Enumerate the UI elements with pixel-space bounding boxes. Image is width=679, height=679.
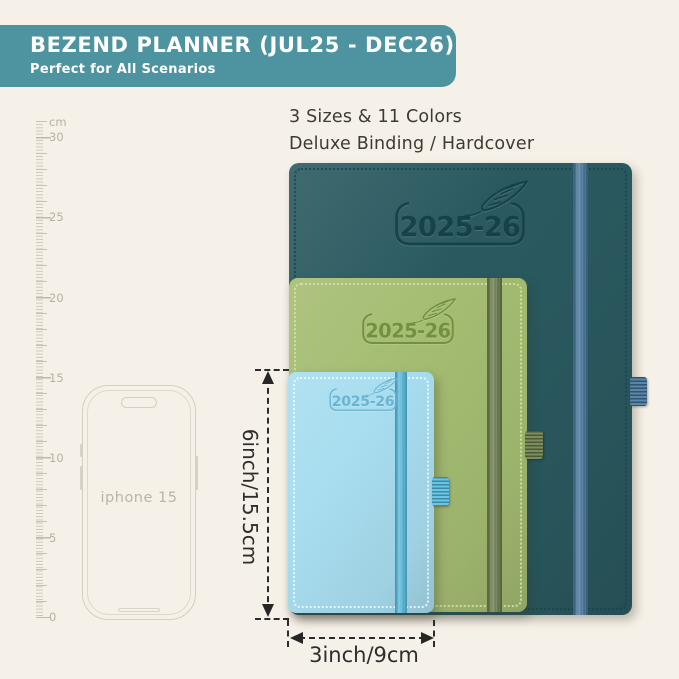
volume-button (80, 466, 83, 490)
dimension-cap (255, 618, 289, 620)
planner-small: 2025-26 (288, 372, 434, 613)
feather-barbs (465, 184, 519, 216)
pen-loop (525, 431, 543, 459)
dimension-cap (287, 620, 289, 647)
ruler-label: 10 (49, 451, 64, 465)
pen-loop (432, 477, 449, 506)
width-label: 3inch/9cm (309, 643, 419, 667)
iphone-outline: iphone 15 (82, 385, 196, 620)
dimension-line (267, 378, 269, 612)
arrow-up-icon (262, 371, 274, 384)
iphone-label: iphone 15 (83, 490, 195, 506)
ruler-label: 0 (49, 610, 56, 624)
volume-button (80, 444, 83, 457)
ruler-label: 20 (49, 291, 64, 305)
year-text: 2025-26 (400, 212, 521, 243)
dimension-line (299, 637, 425, 639)
year-text: 2025-26 (365, 319, 450, 342)
intro-text: 3 Sizes & 11 Colors Deluxe Binding / Har… (289, 104, 534, 158)
header-banner: BEZEND PLANNER (JUL25 - DEC26) Perfect f… (0, 25, 456, 87)
dynamic-island (121, 397, 157, 408)
arrow-down-icon (262, 604, 274, 617)
year-text: 2025-26 (332, 394, 395, 410)
home-indicator (118, 608, 160, 612)
pen-loop (630, 377, 647, 406)
ruler-label: 15 (49, 371, 64, 385)
product-infographic: BEZEND PLANNER (JUL25 - DEC26) Perfect f… (0, 0, 679, 679)
banner-subtitle: Perfect for All Scenarios (30, 62, 456, 77)
ruler-unit-label: cm (49, 115, 67, 129)
year-logo: 2025-26 (348, 295, 468, 346)
ruler-label: 30 (49, 130, 64, 144)
height-label: 6inch/15.5cm (238, 429, 262, 565)
arrow-right-icon (421, 632, 434, 644)
sizes-colors-line: 3 Sizes & 11 Colors (289, 104, 534, 131)
banner-title: BEZEND PLANNER (JUL25 - DEC26) (30, 33, 456, 57)
feather-barbs (365, 379, 393, 395)
power-button (195, 456, 198, 490)
ruler-label: 25 (49, 210, 64, 224)
elastic-band (487, 278, 502, 612)
year-logo: 2025-26 (319, 375, 407, 413)
elastic-band (573, 163, 588, 615)
binding-line: Deluxe Binding / Hardcover (289, 131, 534, 158)
ruler-label: 5 (49, 531, 56, 545)
year-logo: 2025-26 (375, 176, 545, 249)
arrow-left-icon (290, 632, 303, 644)
